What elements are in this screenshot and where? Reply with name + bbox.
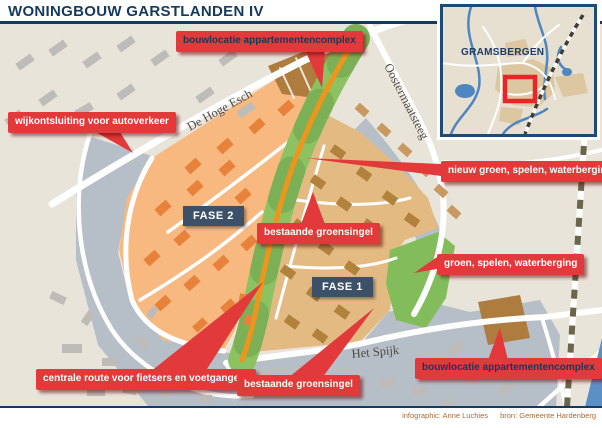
inset-town-label: GRAMSBERGEN (461, 47, 544, 58)
callout-groen-spelen-waterberging: groen, spelen, waterberging (437, 254, 584, 275)
callout-centrale-route-fietsers-voetgangers: centrale route voor fietsers en voetgang… (36, 369, 256, 390)
footer-rule (0, 406, 602, 408)
credit-infographic: infographic: Anne Luchies (402, 411, 488, 420)
callout-bestaande-groensingel-bottom: bestaande groensingel (237, 375, 360, 396)
callout-bestaande-groensingel-center: bestaande groensingel (257, 223, 380, 244)
infographic-canvas: WONINGBOUW GARSTLANDEN IV (0, 0, 602, 428)
inset-map-canvas: GRAMSBERGEN (443, 7, 594, 134)
inset-pond (562, 68, 572, 76)
credits-line: infographic: Anne Luchies bron: Gemeente… (392, 411, 596, 420)
fase2-label: FASE 2 (183, 206, 244, 226)
callout-bouwlocatie-appartementencomplex-bottom: bouwlocatie appartementencomplex (415, 358, 602, 379)
inset-lake (455, 84, 475, 98)
fase1-label: FASE 1 (312, 277, 373, 297)
callout-nieuw-groen-spelen-waterberging: nieuw groen, spelen, waterberging (441, 161, 602, 182)
inset-map: GRAMSBERGEN (440, 4, 597, 137)
credit-source: bron: Gemeente Hardenberg (500, 411, 596, 420)
callout-bouwlocatie-appartementencomplex-top: bouwlocatie appartementencomplex (176, 31, 363, 52)
callout-wijkontsluiting-autoverkeer: wijkontsluiting voor autoverkeer (8, 112, 176, 133)
